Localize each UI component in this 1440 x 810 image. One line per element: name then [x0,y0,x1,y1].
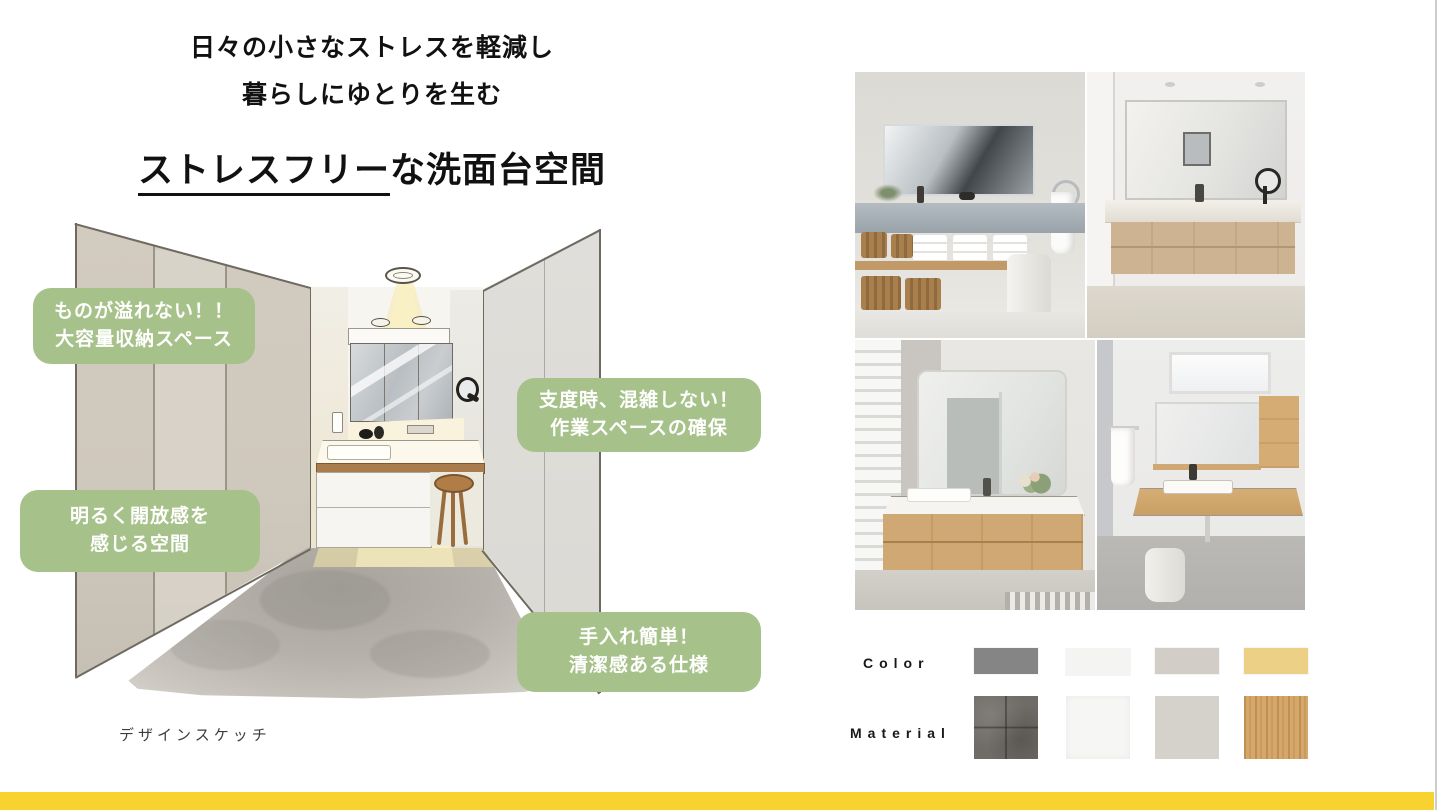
page-title-underlined: ストレスフリー [138,151,390,196]
photo1-bottle [917,186,924,203]
photo4-basin [1163,480,1233,494]
callout-brightness-line2: 感じる空間 [20,534,260,556]
wood-texture [1244,696,1308,759]
material-swatch-concrete [974,696,1038,759]
callout-storage-line1: ものが溢れない！！ [33,301,255,323]
page-title-rest: な洗面台空間 [390,151,606,190]
photo1-floor [855,312,1085,338]
photo4-floor [1097,536,1305,610]
photo2-floor [1087,286,1305,338]
callout-cleanliness: 手入れ簡単！ 清潔感ある仕様 [517,612,761,692]
photo2-magnifying-mirror [1255,168,1281,194]
photo4-mirror [1155,402,1263,468]
photo4-drain-pipe [1205,516,1210,542]
material-label: Material [850,725,951,741]
photo1-towel-stack [953,235,987,261]
sketch-line [483,290,484,550]
faucet-icon [359,429,373,439]
photo3-bottle [983,478,991,496]
vanity-photo-4 [1097,340,1305,610]
photo2-marble-counter [1105,200,1301,223]
page-title: ストレスフリーな洗面台空間 [0,142,744,193]
callout-brightness: 明るく開放感を 感じる空間 [20,490,260,572]
photo2-bottle [1195,184,1204,202]
sketch-wooden-stool [434,474,474,493]
material-swatch-white [1066,696,1130,759]
photo4-bottle [1189,464,1197,480]
photo1-concrete-shelf [855,203,1085,233]
photo1-towel-stack [913,235,947,261]
photo3-basin [907,488,971,502]
photo1-basket [891,234,913,258]
photo4-towel [1111,428,1135,486]
callout-workspace-line1: 支度時、混雑しない！ [517,390,761,412]
header-block: 日々の小さなストレスを軽減し 暮らしにゆとりを生む ストレスフリーな洗面台空間 [0,36,744,193]
slide-right-edge [1435,0,1437,810]
callout-cleanliness-line2: 清潔感ある仕様 [517,655,761,677]
vanity-photo-1 [855,72,1085,338]
photo3-flower-vase [1013,468,1053,494]
photo3-glass-line [999,392,1002,494]
photo1-basket [905,278,941,310]
photo1-plant [873,184,903,202]
vanity-photo-3 [855,340,1095,610]
callout-workspace-line2: 作業スペースの確保 [517,418,761,440]
photo2-downlight [1255,82,1265,87]
photo1-basket [861,276,901,310]
callout-cleanliness-line1: 手入れ簡単！ [517,627,761,649]
color-swatch-gray [974,648,1038,674]
photo3-shower-reflection [947,398,999,494]
photo4-window [1169,352,1271,394]
sketch-mirror-cabinet [350,343,453,422]
sketch-caption: デザインスケッチ [119,724,271,745]
callout-storage: ものが溢れない！！ 大容量収納スペース [33,288,255,364]
photo4-wood-ledge [1153,464,1261,470]
subtitle-line-2: 暮らしにゆとりを生む [0,83,744,108]
photo4-waste-bin [1145,548,1185,602]
photo4-wood-cabinet [1259,396,1299,468]
photo3-drawer-line [883,541,1083,543]
sketch-outlet-panel [407,425,434,434]
material-swatch-wood [1244,696,1308,759]
photo1-basket [861,232,887,258]
photo2-wood-vanity [1111,222,1295,274]
vanity-photo-2 [1087,72,1305,338]
photo2-mirror-window-reflection [1183,132,1211,166]
concrete-texture [974,696,1038,759]
photo1-mirror [883,124,1035,196]
sketch-soap-dispenser [332,412,343,433]
accent-bar [0,792,1434,810]
stool-leg [451,487,455,547]
callout-workspace: 支度時、混雑しない！ 作業スペースの確保 [517,378,761,452]
sketch-sink [327,445,391,460]
sketch-line [310,287,311,548]
downlight-icon [371,318,390,327]
photo2-drawer-line [1111,246,1295,248]
sketch-lower-cabinet [316,472,432,548]
subtitle-line-1: 日々の小さなストレスを軽減し [0,36,744,61]
ceiling-light-icon [385,267,421,284]
photo2-mirror-stand [1263,186,1267,204]
color-swatch-greige [1155,648,1219,674]
color-swatch-offwhite [1066,649,1130,675]
design-slide: 日々の小さなストレスを軽減し 暮らしにゆとりを生む ストレスフリーな洗面台空間 [0,0,1440,810]
callout-brightness-line1: 明るく開放感を [20,506,260,528]
callout-storage-line2: 大容量収納スペース [33,329,255,351]
downlight-icon [412,316,431,325]
photo1-waste-bin [1007,254,1051,320]
faucet-icon [374,426,384,439]
photo2-downlight [1165,82,1175,87]
color-swatch-yellow [1244,648,1308,674]
color-label: Color [863,655,930,671]
photo3-striped-mat [1005,592,1095,610]
material-swatch-greige [1155,696,1219,759]
photo1-faucet [959,192,975,200]
